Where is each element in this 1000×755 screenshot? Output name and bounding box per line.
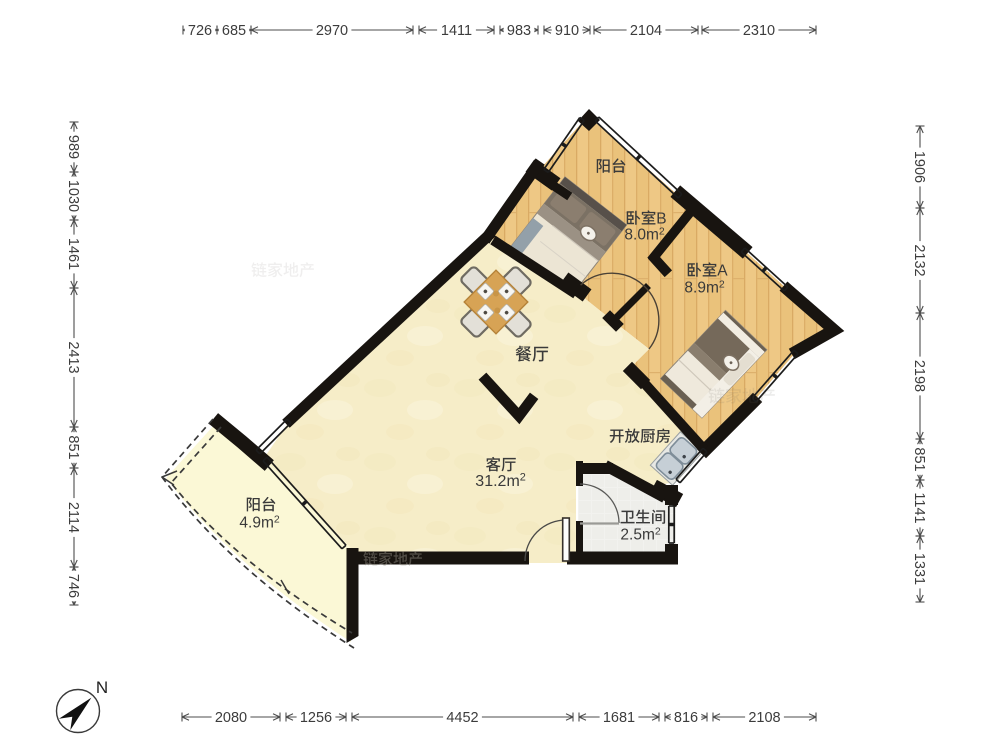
svg-text:8.0m: 8.0m — [624, 227, 658, 244]
svg-text:1906: 1906 — [911, 151, 927, 183]
svg-text:1331: 1331 — [911, 553, 927, 585]
svg-text:2108: 2108 — [748, 710, 780, 726]
svg-text:2310: 2310 — [743, 23, 775, 39]
svg-text:2.5m: 2.5m — [620, 527, 654, 544]
svg-text:1681: 1681 — [603, 710, 635, 726]
svg-text:983: 983 — [507, 23, 531, 39]
svg-text:2: 2 — [520, 472, 526, 484]
svg-text:2114: 2114 — [65, 502, 81, 533]
svg-text:2132: 2132 — [911, 244, 927, 276]
svg-text:2: 2 — [659, 226, 665, 238]
svg-text:816: 816 — [674, 710, 698, 726]
svg-text:2104: 2104 — [630, 23, 662, 39]
svg-text:8.9m: 8.9m — [684, 280, 718, 297]
svg-text:2: 2 — [719, 279, 725, 291]
svg-text:A: A — [717, 263, 728, 280]
svg-text:726: 726 — [188, 23, 212, 39]
svg-text:31.2m: 31.2m — [475, 473, 519, 490]
svg-text:989: 989 — [65, 135, 81, 159]
svg-text:1461: 1461 — [65, 238, 81, 270]
svg-text:2413: 2413 — [65, 341, 81, 373]
svg-text:4.9m: 4.9m — [239, 515, 273, 532]
svg-text:685: 685 — [222, 23, 246, 39]
svg-text:2970: 2970 — [316, 23, 348, 39]
svg-text:851: 851 — [65, 435, 81, 459]
svg-text:746: 746 — [65, 574, 81, 598]
svg-text:851: 851 — [911, 447, 927, 471]
svg-text:1030: 1030 — [65, 180, 81, 212]
svg-text:2: 2 — [274, 514, 280, 526]
svg-text:2: 2 — [655, 526, 661, 538]
svg-text:1411: 1411 — [441, 23, 472, 39]
svg-text:2198: 2198 — [911, 360, 927, 392]
svg-text:2080: 2080 — [215, 710, 247, 726]
svg-text:1256: 1256 — [300, 710, 332, 726]
svg-text:4452: 4452 — [446, 710, 478, 726]
svg-text:1141: 1141 — [911, 492, 927, 523]
svg-text:N: N — [96, 678, 108, 697]
svg-text:910: 910 — [555, 23, 579, 39]
